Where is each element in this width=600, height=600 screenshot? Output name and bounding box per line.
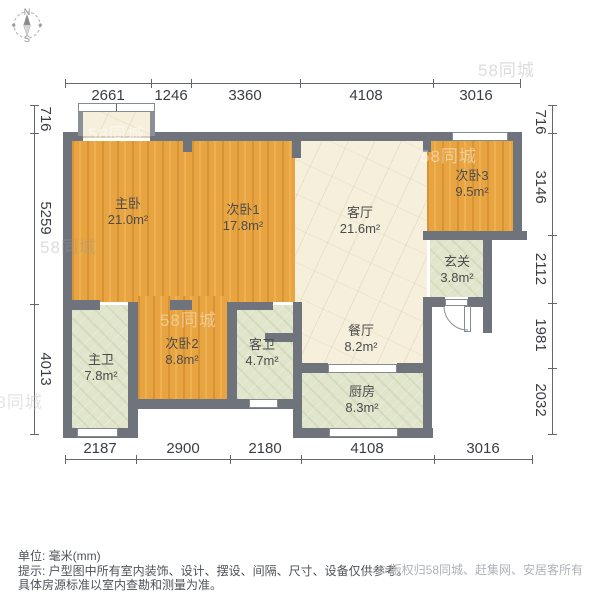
compass-icon: N S — [8, 6, 46, 44]
disclaimer-line-2: 具体房源标准以室内查勘和测量为准。 — [18, 578, 222, 592]
disclaimer-line-1: 提示: 户型图中所有室内装饰、设计、摆设、间隔、尺寸、设备仅供参考。 — [18, 564, 409, 578]
compass-north-label: N — [24, 7, 31, 17]
room-area: 7.8m² — [56, 368, 146, 384]
room-name: 次卧2 — [137, 336, 227, 352]
balcony-window-divider — [116, 104, 117, 111]
dim-tick — [65, 79, 66, 88]
dim-top-2: 3360 — [210, 88, 280, 104]
wall — [292, 140, 301, 158]
dim-tick — [301, 455, 302, 464]
dim-tick — [532, 455, 533, 464]
dim-tick — [136, 455, 137, 464]
dim-tick — [548, 235, 557, 236]
dim-bottom-0: 2187 — [65, 441, 135, 457]
room-name: 玄关 — [412, 254, 502, 270]
room-label-master-bathroom: 主卫 7.8m² — [56, 352, 146, 384]
dim-tick — [191, 79, 192, 88]
dim-tick — [433, 79, 434, 88]
room-label-guest-bathroom: 客卫 4.7m² — [217, 337, 307, 369]
entry-door-swing-arc — [440, 295, 480, 340]
room-area: 4.7m² — [217, 353, 307, 369]
dim-left-2: 4013 — [37, 334, 53, 404]
room-label-entry-hall: 玄关 3.8m² — [412, 254, 502, 286]
dim-right-3: 1981 — [532, 300, 548, 370]
wall — [423, 231, 527, 240]
dim-tick — [548, 133, 557, 134]
room-area: 21.6m² — [315, 221, 405, 237]
dim-tick — [434, 455, 435, 464]
wall — [183, 132, 192, 152]
dim-tick — [300, 79, 301, 88]
dimension-line-right — [552, 105, 553, 434]
dim-top-1: 1246 — [136, 88, 206, 104]
dimension-line-left — [34, 105, 35, 434]
room-name: 次卧1 — [198, 202, 288, 218]
room-label-master-bedroom: 主卧 21.0m² — [83, 196, 173, 228]
unit-note: 单位: 毫米(mm) — [18, 549, 101, 563]
room-area: 8.8m² — [137, 352, 227, 368]
dim-tick — [151, 79, 152, 88]
copyright-notice: © 版权归58同城、赶集网、安居客所有 — [377, 561, 583, 578]
dim-top-4: 3016 — [441, 88, 511, 104]
room-name: 次卧3 — [427, 168, 517, 184]
wall — [63, 132, 72, 438]
room-area: 8.3m² — [317, 400, 407, 416]
dim-tick — [548, 303, 557, 304]
dim-tick — [30, 304, 39, 305]
bedroom-3-window — [452, 132, 508, 141]
dim-bottom-2: 2180 — [230, 441, 300, 457]
dim-left-0: 716 — [37, 84, 53, 154]
compass-south-label: S — [24, 34, 30, 44]
master-bathroom-window — [77, 428, 118, 437]
wall — [397, 363, 432, 373]
dimension-line-top — [65, 83, 520, 84]
room-name: 餐厅 — [316, 323, 406, 339]
room-name: 主卧 — [83, 196, 173, 212]
dim-bottom-3: 4108 — [332, 441, 402, 457]
dim-right-1: 3146 — [532, 152, 548, 222]
dim-tick — [548, 105, 557, 106]
wall — [150, 132, 453, 141]
wall — [423, 132, 431, 152]
room-label-living-room: 客厅 21.6m² — [315, 205, 405, 237]
dim-bottom-1: 2900 — [148, 441, 218, 457]
balcony-floor — [83, 110, 150, 138]
dim-tick — [548, 434, 557, 435]
wall — [63, 300, 100, 310]
room-name: 厨房 — [317, 384, 407, 400]
room-label-dining-room: 餐厅 8.2m² — [316, 323, 406, 355]
room-area: 17.8m² — [198, 218, 288, 234]
kitchen-window — [329, 428, 398, 437]
guest-bathroom-window — [249, 399, 278, 408]
room-name: 客卫 — [217, 337, 307, 353]
room-area: 3.8m² — [412, 270, 502, 286]
dim-tick — [30, 434, 39, 435]
room-name: 客厅 — [315, 205, 405, 221]
dim-left-1: 5259 — [37, 183, 53, 253]
dim-right-0: 716 — [532, 87, 548, 157]
kitchen-door-threshold — [328, 364, 397, 373]
room-area: 8.2m² — [316, 339, 406, 355]
room-name: 主卫 — [56, 352, 146, 368]
dim-bottom-4: 3016 — [448, 441, 518, 457]
room-label-bedroom-1: 次卧1 17.8m² — [198, 202, 288, 234]
wall — [130, 399, 230, 409]
room-label-kitchen: 厨房 8.3m² — [317, 384, 407, 416]
dim-top-3: 4108 — [331, 88, 401, 104]
room-label-bedroom-2: 次卧2 8.8m² — [137, 336, 227, 368]
room-area: 9.5m² — [427, 184, 517, 200]
balcony-sill — [83, 136, 150, 138]
dim-right-2: 2112 — [532, 234, 548, 304]
floorplan-page: N S — [0, 0, 600, 600]
room-area: 21.0m² — [83, 212, 173, 228]
wall — [170, 300, 192, 310]
dim-tick — [548, 368, 557, 369]
watermark: 58同城 — [478, 56, 535, 81]
dim-tick — [520, 79, 521, 88]
dim-top-0: 2661 — [73, 88, 143, 104]
dim-right-4: 2032 — [532, 365, 548, 435]
room-label-bedroom-3: 次卧3 9.5m² — [427, 168, 517, 200]
